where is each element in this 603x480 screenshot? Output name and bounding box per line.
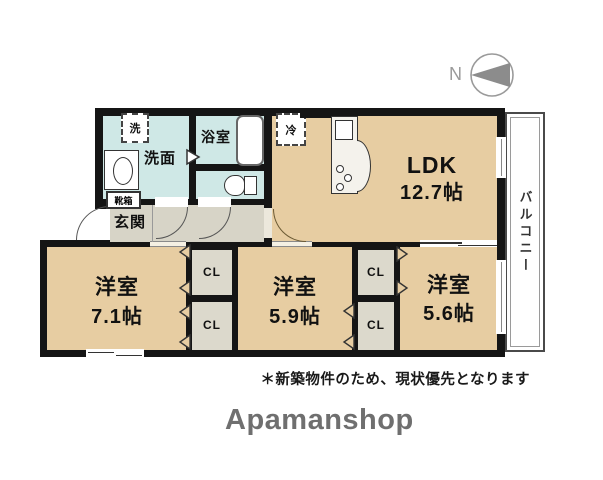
toilet-bowl (224, 175, 245, 196)
bathroom-label: 浴室 (188, 129, 244, 145)
closet-label: CL (356, 266, 396, 280)
toilet-tank (244, 176, 257, 195)
bedroom2-name: 洋室 (235, 276, 355, 300)
stove-burner (336, 165, 344, 173)
folding-door-icon (394, 246, 410, 262)
kitchen-counter (331, 116, 358, 194)
washing-machine-box: 洗 (121, 113, 149, 143)
floorplan-image: N バルコニー (0, 0, 603, 480)
folding-door-icon (341, 334, 357, 350)
balcony-label: バルコニー (516, 190, 535, 275)
closet-label: CL (356, 319, 396, 333)
fridge-label: 冷 (286, 122, 297, 138)
folding-door-icon (177, 334, 193, 350)
shoebox-label: 靴箱 (114, 194, 132, 207)
closet-label: CL (192, 266, 232, 280)
shoe-cabinet: 靴箱 (106, 191, 141, 209)
folding-door-icon (177, 280, 193, 296)
balcony-rail: バルコニー (510, 117, 540, 347)
folding-door-icon (177, 244, 193, 260)
genkan-step-line (152, 205, 153, 242)
ldk-door-opening (264, 208, 272, 238)
bedroom1-size: 7.1帖 (57, 306, 177, 329)
closet-label: CL (192, 319, 232, 333)
bedroom2-door-threshold (272, 241, 312, 247)
washer-label: 洗 (130, 120, 141, 136)
ldk-size: 12.7帖 (372, 182, 492, 205)
washroom-door-opening (155, 197, 188, 207)
ldk-name: LDK (372, 152, 492, 178)
toilet (224, 175, 262, 198)
footnote: ＊新築物件のため、現状優先となります (230, 368, 530, 389)
toilet-door-opening (198, 197, 231, 207)
bedroom1-window (86, 349, 144, 358)
entrance-door-swing-icon (76, 206, 110, 240)
washroom-label: 洗面 (130, 150, 190, 167)
bedroom1-name: 洋室 (57, 276, 177, 300)
balcony: バルコニー (505, 112, 545, 352)
entrance-label: 玄関 (108, 214, 152, 231)
brand-logo: Apamanshop (225, 404, 414, 437)
bedroom3-size: 5.6帖 (389, 303, 509, 326)
bedroom3-sliding-door (420, 240, 497, 247)
bedroom2-size: 5.9帖 (235, 306, 355, 329)
compass-north-label: N (446, 64, 466, 85)
stove-burner (344, 174, 352, 182)
kitchen-sink (335, 120, 353, 140)
bedroom3-name: 洋室 (389, 274, 509, 298)
stove-burner (336, 183, 344, 191)
folding-door-icon (177, 304, 193, 320)
wall-notch (300, 108, 333, 118)
ldk-window (496, 137, 506, 178)
room-bedroom3 (400, 247, 497, 350)
